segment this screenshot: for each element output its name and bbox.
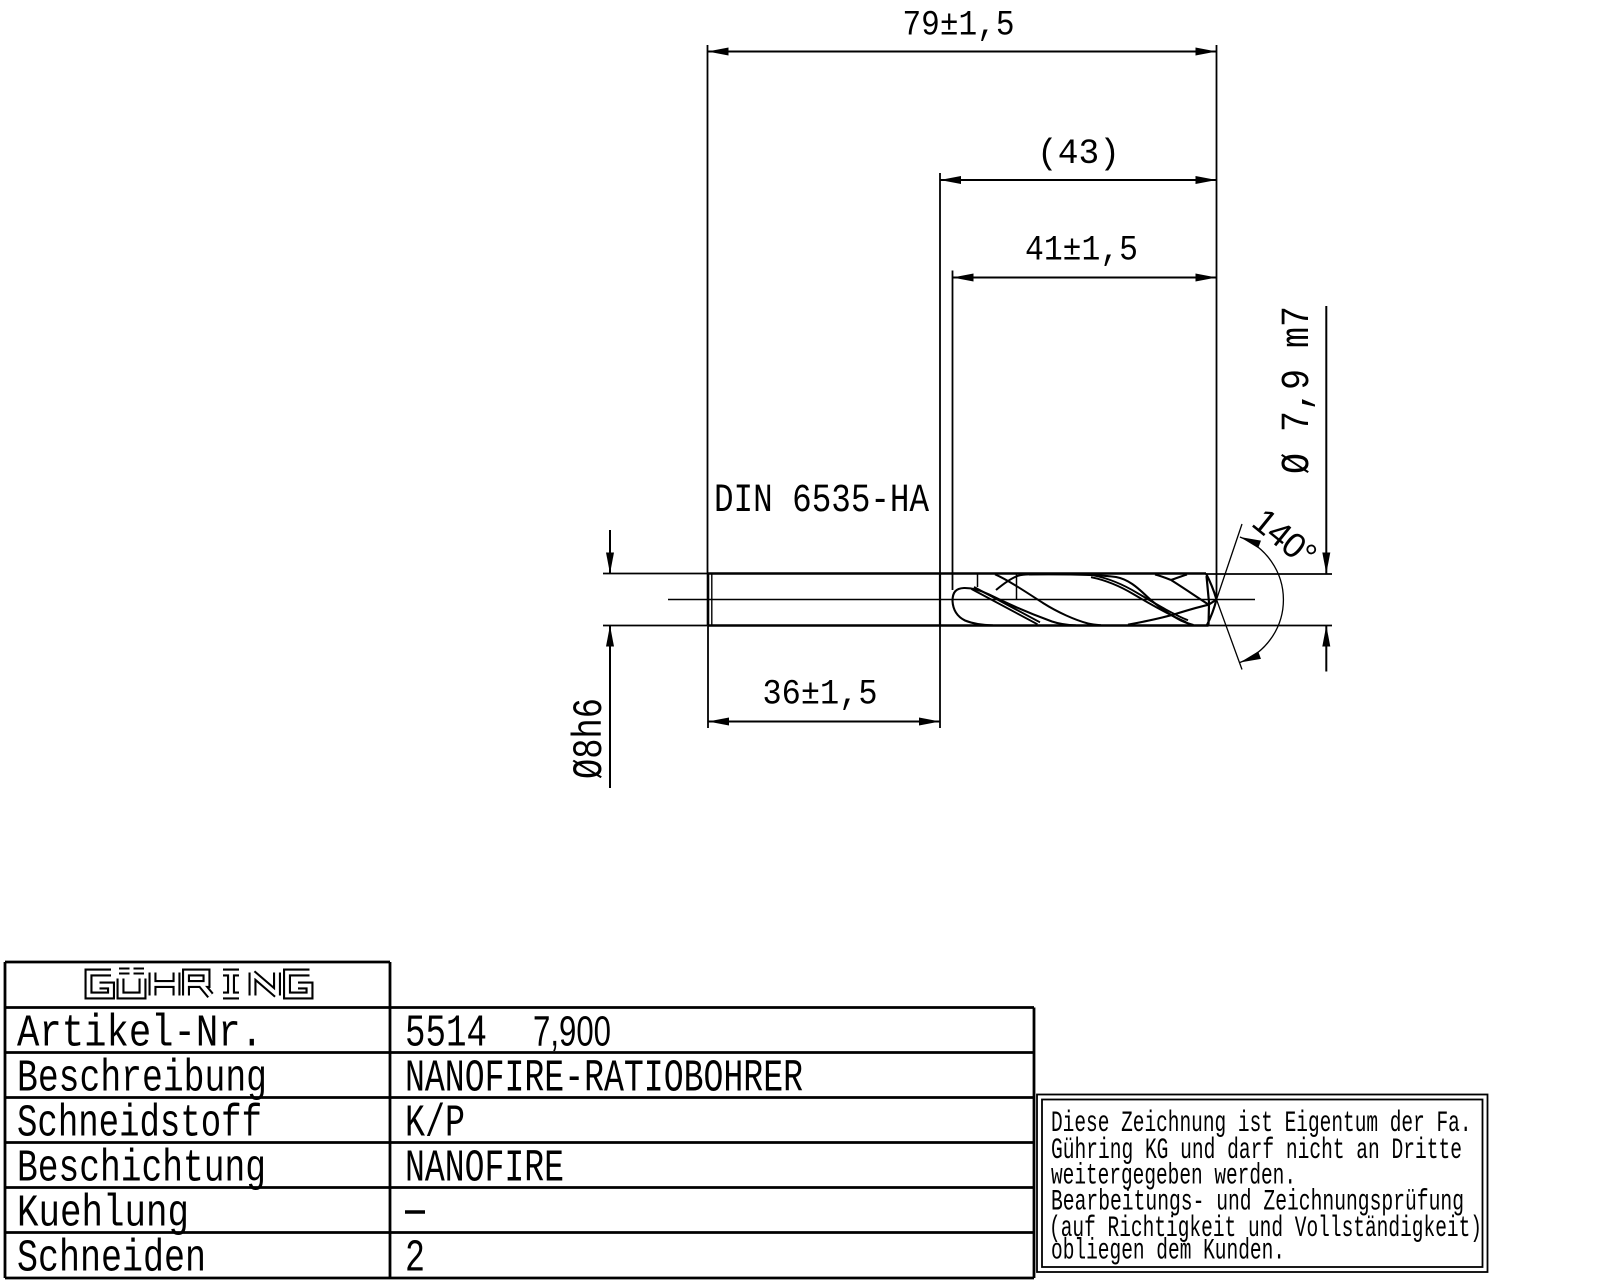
svg-text:2: 2 [405,1234,425,1280]
svg-text:Schneiden: Schneiden [17,1234,206,1280]
svg-text:DIN 6535-HA: DIN 6535-HA [714,479,929,524]
svg-text:Beschichtung: Beschichtung [17,1144,266,1195]
svg-text:79±1,5: 79±1,5 [903,6,1015,46]
svg-text:7,900: 7,900 [533,1008,611,1056]
svg-text:K/P: K/P [405,1099,465,1150]
svg-text:5514: 5514 [405,1009,487,1060]
svg-text:Kuehlung: Kuehlung [17,1189,189,1240]
svg-text:Artikel-Nr.: Artikel-Nr. [17,1009,263,1060]
svg-text:Ø8h6: Ø8h6 [566,698,614,779]
svg-text:Beschreibung: Beschreibung [17,1054,267,1105]
svg-text:obliegen dem Kunden.: obliegen dem Kunden. [1051,1235,1285,1269]
svg-text:Schneidstoff: Schneidstoff [17,1099,262,1150]
svg-text:140°: 140° [1245,501,1324,575]
svg-text:NANOFIRE: NANOFIRE [405,1144,564,1195]
svg-text:(43): (43) [1037,134,1120,174]
svg-text:NANOFIRE-RATIOBOHRER: NANOFIRE-RATIOBOHRER [405,1054,803,1105]
svg-text:36±1,5: 36±1,5 [763,675,878,715]
svg-text:41±1,5: 41±1,5 [1025,231,1138,271]
svg-text:Ø 7,9 m7: Ø 7,9 m7 [1276,306,1321,474]
